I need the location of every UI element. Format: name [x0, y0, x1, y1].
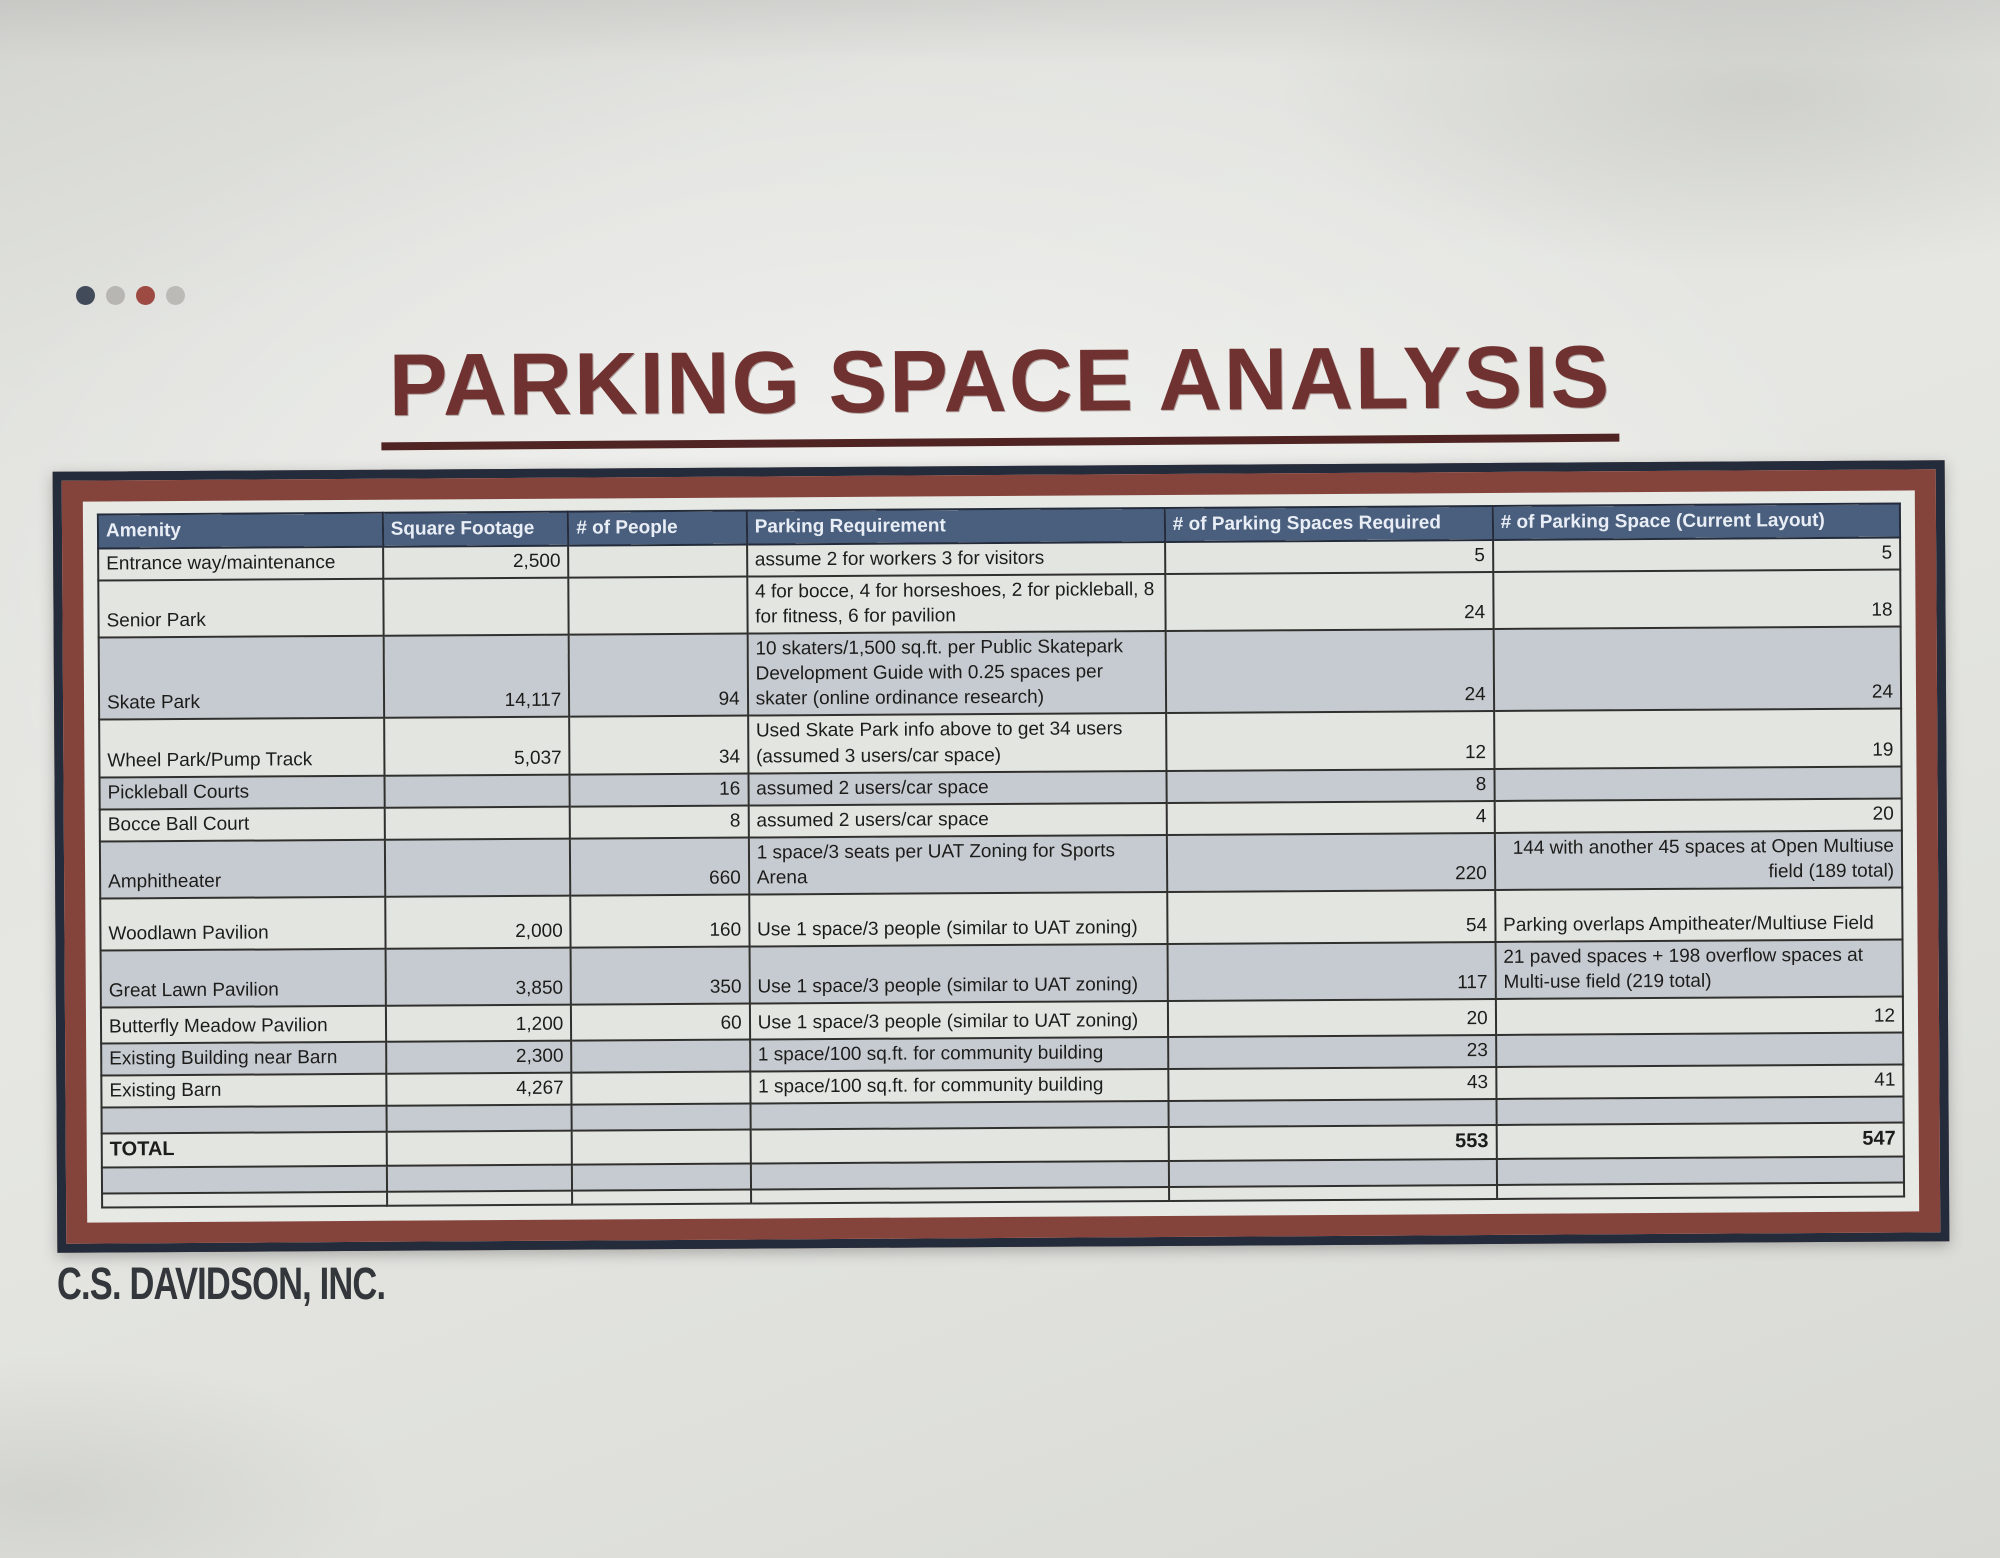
people-cell	[572, 1130, 751, 1164]
requirement-cell: 1 space/100 sq.ft. for community buildin…	[750, 1037, 1168, 1072]
column-header-current-layout: # of Parking Space (Current Layout)	[1493, 504, 1900, 540]
total-spaces-required-cell: 553	[1168, 1125, 1496, 1160]
analysis-table-inner-frame: Amenity Square Footage # of People Parki…	[62, 469, 1941, 1243]
spaces-required-cell: 117	[1167, 942, 1495, 1001]
dot-red	[136, 286, 155, 305]
amenity-cell: Bocce Ball Court	[100, 807, 385, 841]
people-cell	[569, 577, 748, 635]
amenity-cell: Existing Barn	[101, 1074, 386, 1108]
requirement-cell	[750, 1101, 1168, 1130]
spaces-required-cell: 54	[1167, 890, 1495, 944]
analysis-table-frame: Amenity Square Footage # of People Parki…	[53, 460, 1950, 1252]
amenity-cell: Existing Building near Barn	[101, 1042, 386, 1076]
total-current-layout-cell: 547	[1496, 1123, 1903, 1159]
current-layout-cell: 21 paved spaces + 198 overflow spaces at…	[1495, 939, 1903, 999]
sqft-cell: 3,850	[385, 948, 571, 1006]
spaces-required-cell: 43	[1168, 1067, 1496, 1101]
requirement-cell: Used Skate Park info above to get 34 use…	[748, 713, 1166, 773]
spaces-required-cell: 8	[1166, 769, 1494, 803]
requirement-cell	[751, 1187, 1169, 1204]
sqft-cell	[384, 774, 570, 807]
dot-gray-2	[166, 286, 185, 305]
requirement-cell: Use 1 space/3 people (similar to UAT zon…	[749, 892, 1167, 947]
spaces-required-cell: 24	[1165, 572, 1493, 631]
people-cell	[572, 1163, 751, 1190]
current-layout-cell	[1496, 1097, 1903, 1125]
sqft-cell	[387, 1190, 573, 1205]
total-label-cell: TOTAL	[102, 1132, 387, 1167]
spaces-required-cell	[1168, 1099, 1496, 1127]
current-layout-cell	[1497, 1182, 1904, 1198]
amenity-cell	[102, 1106, 387, 1134]
people-cell: 160	[571, 894, 750, 947]
sqft-cell: 2,500	[383, 546, 569, 579]
amenity-cell: Great Lawn Pavilion	[101, 949, 386, 1008]
sqft-cell	[386, 1105, 572, 1132]
people-cell: 60	[571, 1004, 750, 1041]
spaces-required-cell	[1169, 1159, 1497, 1187]
people-cell: 350	[571, 946, 750, 1004]
sqft-cell	[383, 578, 569, 636]
requirement-cell: assumed 2 users/car space	[748, 771, 1166, 806]
requirement-cell	[751, 1161, 1169, 1190]
column-header-people: # of People	[568, 511, 747, 546]
requirement-cell: 1 space/100 sq.ft. for community buildin…	[750, 1069, 1168, 1104]
amenity-cell	[102, 1165, 387, 1193]
requirement-cell: 10 skaters/1,500 sq.ft. per Public Skate…	[747, 631, 1166, 716]
company-logo: C.S. DAVIDSON, INC.	[57, 1258, 385, 1310]
requirement-cell: assumed 2 users/car space	[748, 803, 1166, 838]
people-cell	[572, 1189, 750, 1204]
sqft-cell	[384, 806, 570, 839]
amenity-cell: Entrance way/maintenance	[98, 547, 383, 581]
dot-gray-1	[106, 286, 125, 305]
amenity-cell: Amphitheater	[100, 840, 385, 899]
sqft-cell: 2,300	[386, 1041, 572, 1074]
sqft-cell	[385, 838, 571, 896]
people-cell	[572, 1072, 751, 1105]
people-cell	[571, 1040, 750, 1073]
current-layout-cell: Parking overlaps Ampitheater/Multiuse Fi…	[1495, 887, 1903, 941]
table-row: Skate Park 14,117 94 10 skaters/1,500 sq…	[99, 627, 1901, 720]
sqft-cell	[387, 1164, 573, 1191]
current-layout-cell: 12	[1496, 997, 1904, 1035]
current-layout-cell: 5	[1493, 538, 1900, 573]
sqft-cell: 5,037	[384, 717, 570, 775]
current-layout-cell	[1494, 766, 1901, 801]
column-header-square-footage: Square Footage	[383, 512, 569, 547]
requirement-cell: Use 1 space/3 people (similar to UAT zon…	[750, 1001, 1168, 1040]
sqft-cell: 14,117	[383, 635, 569, 718]
current-layout-cell: 18	[1493, 570, 1901, 630]
spaces-required-cell: 12	[1166, 711, 1494, 770]
requirement-cell: assume 2 for workers 3 for visitors	[747, 542, 1165, 577]
current-layout-cell: 20	[1494, 798, 1901, 833]
amenity-cell: Woodlawn Pavilion	[100, 897, 385, 951]
spaces-required-cell: 5	[1165, 540, 1493, 574]
column-header-spaces-required: # of Parking Spaces Required	[1165, 506, 1493, 542]
people-cell: 34	[569, 716, 748, 774]
amenity-cell: Senior Park	[98, 579, 383, 638]
people-cell: 8	[570, 805, 749, 838]
amenity-cell	[102, 1191, 387, 1207]
paper-page: PARKING SPACE ANALYSIS Amenity Square Fo…	[0, 0, 2000, 1558]
amenity-cell: Butterfly Meadow Pavilion	[101, 1006, 386, 1044]
column-header-parking-requirement: Parking Requirement	[747, 508, 1165, 545]
sqft-cell: 2,000	[385, 896, 571, 949]
parking-analysis-table: Amenity Square Footage # of People Parki…	[97, 502, 1905, 1208]
spaces-required-cell: 20	[1168, 999, 1496, 1037]
current-layout-cell: 24	[1493, 627, 1901, 712]
sqft-cell	[386, 1131, 572, 1166]
logo-dots	[76, 286, 185, 305]
spaces-required-cell: 220	[1167, 833, 1495, 892]
current-layout-cell: 19	[1494, 709, 1902, 769]
spaces-required-cell: 24	[1165, 629, 1493, 713]
people-cell: 16	[570, 773, 749, 806]
people-cell	[572, 1104, 751, 1131]
spaces-required-cell: 4	[1166, 801, 1494, 835]
sqft-cell: 4,267	[386, 1073, 572, 1106]
current-layout-cell: 144 with another 45 spaces at Open Multi…	[1495, 830, 1903, 890]
amenity-cell: Skate Park	[99, 636, 384, 720]
spaces-required-cell	[1169, 1185, 1497, 1201]
current-layout-cell	[1496, 1033, 1903, 1068]
requirement-cell: Use 1 space/3 people (similar to UAT zon…	[749, 944, 1167, 1004]
amenity-cell: Wheel Park/Pump Track	[99, 718, 384, 777]
spaces-required-cell: 23	[1168, 1035, 1496, 1069]
sqft-cell: 1,200	[386, 1005, 572, 1042]
people-cell: 94	[569, 634, 748, 717]
current-layout-cell: 41	[1496, 1065, 1903, 1100]
people-cell: 660	[570, 837, 749, 895]
requirement-cell: 4 for bocce, 4 for horseshoes, 2 for pic…	[747, 574, 1165, 634]
page-title: PARKING SPACE ANALYSIS	[380, 326, 1619, 451]
current-layout-cell	[1497, 1156, 1904, 1184]
requirement-cell	[750, 1127, 1168, 1163]
dot-navy	[76, 286, 95, 305]
requirement-cell: 1 space/3 seats per UAT Zoning for Sport…	[749, 835, 1167, 895]
column-header-amenity: Amenity	[98, 513, 383, 549]
amenity-cell: Pickleball Courts	[99, 775, 384, 809]
people-cell	[568, 545, 747, 578]
